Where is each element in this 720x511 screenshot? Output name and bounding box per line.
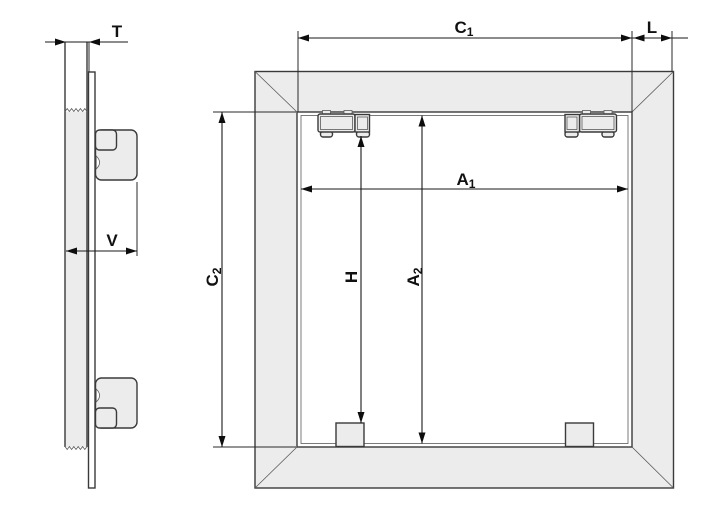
dim-label-l: L [647,18,657,37]
dim-label-c1: C1 [455,18,474,39]
wall-break-line-top [65,109,87,112]
wall-section [65,42,87,450]
clip-button [96,130,117,150]
arrowhead [126,248,137,255]
dim-label-h: H [342,271,361,283]
latch-clip-top [96,130,138,180]
arrowhead [298,35,309,42]
side-view: T V [45,22,137,488]
arrowhead [621,35,632,42]
door-panel-profile [89,72,96,488]
arrowhead [661,35,672,42]
dim-label-c2: C2 [203,267,224,286]
page: T V [0,0,720,511]
arrowhead [219,112,226,123]
hinge-tab-bottom-right [566,423,594,447]
front-view: C1 L A1 C2 H [203,18,688,488]
dim-label-t: T [112,22,123,41]
wall-section-fill [65,112,87,448]
hinge-tab-bottom-left [336,423,364,447]
dimension-l: L [634,18,673,72]
dim-label-v: V [106,231,118,250]
arrowhead [634,35,645,42]
technical-drawing: T V [0,0,720,511]
latch-clip-bottom [96,378,138,428]
arrowhead [89,39,100,46]
arrowhead [219,436,226,447]
